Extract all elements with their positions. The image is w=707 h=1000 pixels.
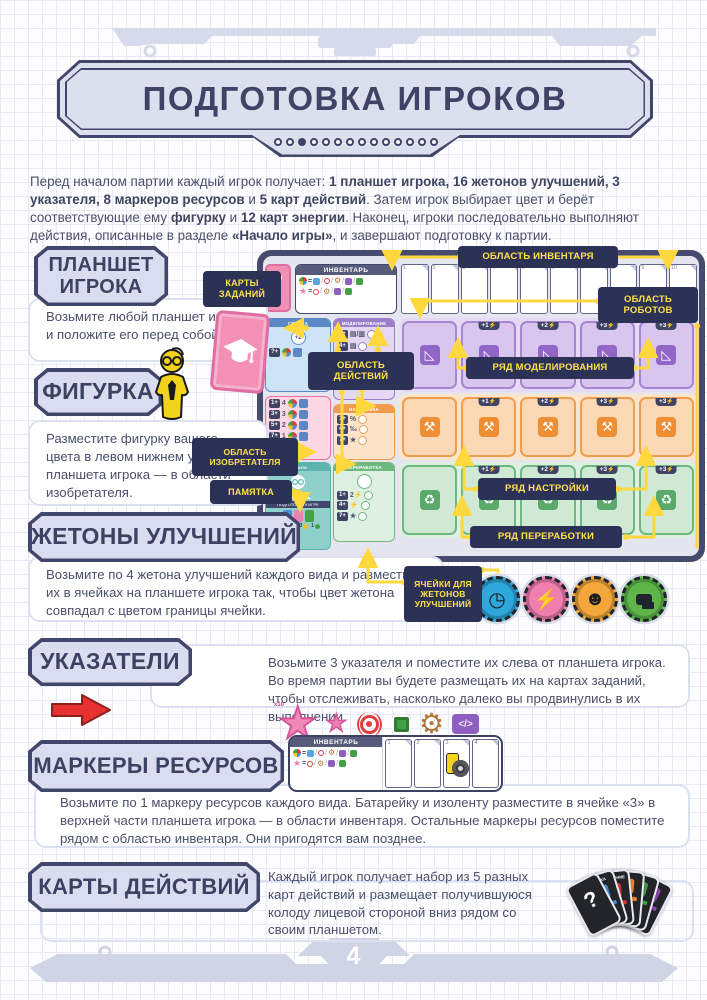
pagination-dot [310, 138, 318, 146]
robot-icon [299, 421, 308, 430]
slot-cost-label: +2 [538, 322, 559, 330]
cell-number: 3 [446, 740, 449, 746]
legend-icon [334, 277, 341, 285]
intro-paragraph: Перед началом партии каждый игрок получа… [30, 173, 686, 244]
inventory-cell: 2 [431, 264, 459, 314]
upgrade-token-pig [523, 576, 569, 622]
requirement-tag: 3+ [269, 410, 280, 419]
callout-task-cards: КАРТЫ ЗАДАНИЙ [203, 271, 281, 307]
robot-card-slot: +3 [639, 465, 694, 535]
legend-icon [336, 760, 338, 767]
bonus-circle [358, 342, 367, 351]
section-badge-action-cards: КАРТЫ ДЕЙСТВИЙ [28, 862, 260, 912]
memo-chip: 3 [300, 523, 309, 529]
board-inventory-label: ИНВЕНТАРЬ [296, 265, 396, 275]
inventory-cell: 6 [550, 264, 578, 314]
cell-number: 2 [417, 740, 420, 746]
rulebook-page: ПОДГОТОВКА ИГРОКОВ Перед началом партии … [0, 0, 707, 1000]
bonus-circle [361, 501, 370, 510]
requirement-tag: 1+ [269, 399, 280, 408]
legend-icon [314, 760, 316, 767]
robot-card-slot: +1 [461, 397, 516, 457]
callout-upgrade-cells: ЯЧЕЙКИ ДЛЯ ЖЕТОНОВ УЛУЧШЕНИЙ [404, 566, 482, 622]
action-row: 1+% [337, 415, 391, 424]
inventory-strip-label: ИНВЕНТАРЬ [290, 737, 382, 747]
tuning-icon [538, 417, 558, 437]
marker-count-badge: x10 [274, 702, 284, 708]
section-badge-resource-markers: МАРКЕРЫ РЕСУРСОВ [28, 740, 284, 792]
robot-card-slot: +3 [639, 397, 694, 457]
legend-icon [350, 750, 357, 757]
upgrade-token-dog [572, 576, 618, 622]
bonus-circle [367, 330, 376, 339]
slot-cost-label: +3 [597, 466, 618, 474]
legend-icon [356, 278, 363, 285]
pagination-dot [358, 138, 366, 146]
legend-icon [302, 760, 306, 767]
pagination-dot [334, 138, 342, 146]
page-number-value: 4 [347, 942, 361, 970]
legend-icon [299, 287, 307, 296]
page-title: ПОДГОТОВКА ИГРОКОВ [57, 60, 653, 138]
action-row: 5+2 [269, 421, 327, 430]
section-title-pointers: УКАЗАТЕЛИ [28, 638, 192, 686]
pagination-dot [346, 138, 354, 146]
legend-icon [331, 278, 333, 285]
inventory-cell: 3 [461, 264, 489, 314]
legend-icon [324, 278, 330, 284]
section-title-upgrade-tokens: ЖЕТОНЫ УЛУЧШЕНИЙ [28, 512, 300, 562]
ruler-icon [420, 345, 440, 365]
requirement-tag: 7+ [337, 512, 348, 521]
inventory-cell: 2 [414, 739, 441, 788]
legend-icon [325, 750, 327, 757]
robot-card-slot [402, 465, 457, 535]
action-glyph: ★ [350, 513, 356, 520]
slot-cost-label: +2 [538, 398, 559, 406]
section-title-resource-markers: МАРКЕРЫ РЕСУРСОВ [28, 740, 284, 792]
inventory-cell: 3 [443, 739, 470, 788]
tuning-row: +1 +2 +3 +3 [399, 394, 697, 460]
cell-number: 1 [403, 265, 406, 271]
memo-card-green [305, 510, 314, 522]
assembly-panel-title: СБОРКА [266, 319, 330, 327]
callout-memo: ПАМЯТКА [210, 480, 292, 504]
modeling-row: +1 +2 +3 +3 [399, 318, 697, 392]
legend-icon [353, 278, 355, 285]
slot-cost-label: +3 [656, 466, 677, 474]
action-row: 7+★ [337, 436, 391, 445]
requirement-tag: 1+ [337, 491, 348, 500]
callout-inventory-area: ОБЛАСТЬ ИНВЕНТАРЯ [458, 246, 618, 268]
legend-icon [302, 750, 306, 757]
action-glyph: ‰ [350, 426, 357, 433]
gear-marker [419, 710, 444, 738]
pagination-dots [250, 135, 462, 146]
action-row: 4+⚡ [337, 501, 391, 510]
pointer-arrow-icon [50, 692, 112, 728]
pointers-text-box: Возьмите 3 указателя и поместите их слев… [150, 644, 690, 708]
action-glyph: 2⚡ [350, 492, 363, 499]
intro-text-segment: «Начало игры» [232, 228, 333, 243]
slot-cost-label: +1 [478, 466, 499, 474]
tuning-icon [597, 417, 617, 437]
pagination-dot [394, 138, 402, 146]
pagination-dot [370, 138, 378, 146]
callout-text: ОБЛАСТЬ РОБОТОВ [603, 294, 693, 316]
legend-icon [313, 278, 320, 285]
pagination-dot [274, 138, 282, 146]
inventory-cell: 1 [385, 739, 412, 788]
memo-chip-value: 1 [311, 523, 314, 529]
legend-icon [307, 750, 314, 757]
recycle-icon [420, 490, 440, 510]
intro-text-segment: и [226, 210, 241, 225]
cell-number: 4 [475, 740, 478, 746]
legend-icon [347, 750, 349, 757]
slot-cost-label: +3 [656, 398, 677, 406]
legend-icon [307, 761, 313, 767]
callout-text: ОБЛАСТЬ ИЗОБРЕТАТЕЛЯ [197, 447, 293, 467]
section-title-figure: ФИГУРКА [34, 368, 162, 416]
legend-icon [334, 288, 341, 295]
section-title-action-cards: КАРТЫ ДЕЙСТВИЙ [28, 862, 260, 912]
requirement-tag: 4+ [337, 501, 348, 510]
legend-icon [293, 749, 301, 757]
player-figure-icon [146, 346, 198, 424]
section-badge-player-board: ПЛАНШЕТ ИГРОКА [34, 246, 168, 306]
action-glyph: % [350, 416, 356, 423]
intro-text-segment: Перед началом партии каждый игрок получа… [30, 174, 329, 189]
cell-number: 2 [433, 265, 436, 271]
action-glyph: ★ [350, 437, 356, 444]
callout-actions-area: ОБЛАСТЬ ДЕЙСТВИЙ [308, 352, 414, 390]
intro-text-segment: фигурку [171, 210, 226, 225]
legend-icon [293, 759, 301, 768]
callout-tuning-row: РЯД НАСТРОЙКИ [478, 478, 616, 500]
bonus-circle [364, 491, 373, 500]
pie-icon [288, 410, 297, 419]
section-badge-figure: ФИГУРКА [34, 368, 162, 416]
callout-text: ПАМЯТКА [228, 487, 274, 498]
modeling-panel-title: МОДЕЛИРОВАНИЕ [334, 319, 394, 327]
inventory-cell: 4 [490, 264, 518, 314]
robot-icon [293, 348, 302, 357]
robot-card-slot: +2 [520, 397, 575, 457]
requirement-tag: 4+ [337, 342, 348, 351]
inventory-cell: 5 [520, 264, 548, 314]
action-cards-text: Каждый игрок получает набор из 5 разных … [268, 869, 532, 937]
action-row: 3+3 [269, 410, 327, 419]
action-value: 4 [282, 400, 286, 407]
upgrade-tokens-row [474, 576, 667, 622]
legend-icon [339, 760, 346, 767]
inventory-cell: 4 [472, 739, 499, 788]
page-title-banner: ПОДГОТОВКА ИГРОКОВ [57, 60, 653, 138]
bonus-circle [358, 512, 367, 521]
legend-icon [345, 278, 352, 285]
ruler-icon [656, 345, 676, 365]
graduation-cap-icon [220, 334, 261, 369]
recycling-badge [357, 474, 372, 489]
upgrade-token-chat [621, 576, 667, 622]
legend-icon [328, 749, 335, 757]
robot-card-slot: +1 [461, 465, 516, 535]
action-cards-body: Каждый игрок получает набор из 5 разных … [268, 868, 536, 939]
tuning-panel: НАСТРОЙКА 1+%4+‰7+★ [333, 404, 395, 460]
robot-icon [299, 432, 308, 441]
robot-card-slot: +3 [580, 465, 635, 535]
action-row: 4+▤ [337, 342, 391, 351]
robot-card-slot: +3 [580, 397, 635, 457]
inventory-strip-legend: ИНВЕНТАРЬ [290, 737, 383, 790]
legend-icon [315, 750, 317, 757]
inventory-strip-illustration: ИНВЕНТАРЬ 1 2 3 4 [288, 735, 503, 792]
legend-icon [318, 750, 324, 756]
action-value: 2 [282, 422, 286, 429]
inventory-cell: 1 [401, 264, 429, 314]
upgrade-tokens-body: Возьмите по 4 жетона улучшений каждого в… [46, 567, 423, 618]
legend-icon [331, 288, 333, 295]
action-row: 4+‰ [337, 425, 391, 434]
task-card [210, 310, 271, 394]
action-cards-fan: УЛУЧШЕНИЕ СБОРКА ? [538, 858, 702, 962]
robot-icon [299, 410, 308, 419]
callout-inventor-area: ОБЛАСТЬ ИЗОБРЕТАТЕЛЯ [192, 438, 298, 476]
callout-text: ОБЛАСТЬ ДЕЙСТВИЙ [313, 360, 409, 382]
pie-icon [282, 348, 291, 357]
slot-cost-label: +3 [597, 322, 618, 330]
requirement-tag: ?+ [269, 348, 280, 357]
memo-chip: 1 [311, 523, 320, 529]
tuning-icon [656, 417, 676, 437]
robot-card-slot: +2 [520, 465, 575, 535]
legend-icon [308, 278, 312, 285]
legend-icon [321, 278, 323, 285]
action-row: 7+★ [337, 512, 391, 521]
section-badge-upgrade-tokens: ЖЕТОНЫ УЛУЧШЕНИЙ [28, 512, 300, 562]
recycling-panel: ПЕРЕРАБОТКА 1+2⚡4+⚡7+★ [333, 462, 395, 542]
tape-icon [452, 760, 469, 777]
slot-cost-label: +1 [478, 398, 499, 406]
recycle-icon [656, 490, 676, 510]
resource-markers-text-box: Возьмите по 1 маркеру ресурсов каждого в… [34, 784, 690, 848]
legend-icon [299, 277, 307, 285]
callout-text: КАРТЫ ЗАДАНИЙ [208, 278, 276, 299]
tuning-panel-title: НАСТРОЙКА [334, 405, 394, 413]
slot-cost-label: +3 [597, 398, 618, 406]
legend-icon [342, 288, 344, 295]
code-marker [452, 714, 479, 734]
pie-icon [288, 399, 297, 408]
robot-card-slot: +3 [639, 321, 694, 389]
section-title-player-board: ПЛАНШЕТ ИГРОКА [34, 246, 168, 306]
legend-icon [323, 288, 330, 296]
callout-robots-area: ОБЛАСТЬ РОБОТОВ [598, 287, 698, 323]
callout-text: РЯД ПЕРЕРАБОТКИ [498, 531, 594, 542]
cell-number: 1 [388, 740, 391, 746]
pagination-dot [382, 138, 390, 146]
slot-cost-label: +3 [656, 322, 677, 330]
pagination-dot [298, 138, 306, 146]
pagination-dot [430, 138, 438, 146]
requirement-tag: 4+ [337, 425, 348, 434]
coil-marker [360, 715, 379, 734]
tuning-icon [420, 417, 440, 437]
assembly-badge: +2 [291, 330, 306, 345]
pagination-dot [406, 138, 414, 146]
star-marker [325, 712, 347, 736]
requirement-tag: 1+ [337, 330, 348, 339]
legend-icon [342, 278, 344, 285]
chip-marker [392, 715, 411, 734]
pagination-tab [250, 135, 462, 157]
callout-text: ОБЛАСТЬ ИНВЕНТАРЯ [482, 251, 593, 262]
callout-modeling-row: РЯД МОДЕЛИРОВАНИЯ [466, 357, 634, 379]
intro-text-segment: и [245, 192, 260, 207]
bonus-circle [359, 425, 368, 434]
callout-text: РЯД МОДЕЛИРОВАНИЯ [493, 362, 608, 373]
legend-icon [345, 288, 352, 295]
robot-icon [299, 399, 308, 408]
callout-text: РЯД НАСТРОЙКИ [505, 483, 589, 494]
pagination-dot [418, 138, 426, 146]
action-row: 1+2⚡ [337, 491, 391, 500]
legend-icon [339, 750, 346, 757]
callout-recycling-row: РЯД ПЕРЕРАБОТКИ [470, 526, 622, 548]
upgrade-tokens-text-box: Возьмите по 4 жетона улучшений каждого в… [28, 556, 444, 622]
bonus-circle [358, 415, 367, 424]
resource-markers-body: Возьмите по 1 маркеру ресурсов каждого в… [60, 795, 664, 846]
intro-text-segment: , и завершают подготовку к партии. [333, 228, 552, 243]
pagination-dot [322, 138, 330, 146]
action-row: 1+▤/▥ [337, 330, 391, 339]
cell-number: 10 [671, 265, 677, 271]
robot-card-slot [402, 397, 457, 457]
legend-icon [328, 760, 335, 767]
action-glyph: ▤/▥ [350, 331, 365, 338]
legend-icon [336, 750, 338, 757]
pagination-dot [286, 138, 294, 146]
requirement-tag: 1+ [337, 415, 348, 424]
requirement-tag: 7+ [337, 436, 348, 445]
legend-icon [308, 288, 312, 295]
legend-icon [320, 288, 322, 295]
slot-cost-label: +1 [478, 322, 499, 330]
action-value: 3 [282, 411, 286, 418]
cell-number: 9 [641, 265, 644, 271]
action-glyph: ▤ [350, 343, 357, 350]
bonus-circle [358, 436, 367, 445]
callout-text: ЯЧЕЙКИ ДЛЯ ЖЕТОНОВ УЛУЧШЕНИЙ [409, 579, 477, 609]
legend-icon [313, 289, 319, 295]
action-glyph: ⚡ [350, 502, 359, 509]
legend-icon [325, 760, 327, 767]
action-row: 1+4 [269, 399, 327, 408]
requirement-tag: 5+ [269, 421, 280, 430]
section-badge-pointers: УКАЗАТЕЛИ [28, 638, 192, 686]
tuning-icon [479, 417, 499, 437]
board-inventory-panel: ИНВЕНТАРЬ [295, 264, 397, 314]
pie-icon [288, 421, 297, 430]
intro-text-segment: 5 карт действий [260, 192, 366, 207]
intro-text-segment: 12 карт энергии [241, 210, 345, 225]
slot-cost-label: +2 [538, 466, 559, 474]
legend-icon [317, 760, 324, 768]
recycling-panel-title: ПЕРЕРАБОТКА [334, 463, 394, 471]
